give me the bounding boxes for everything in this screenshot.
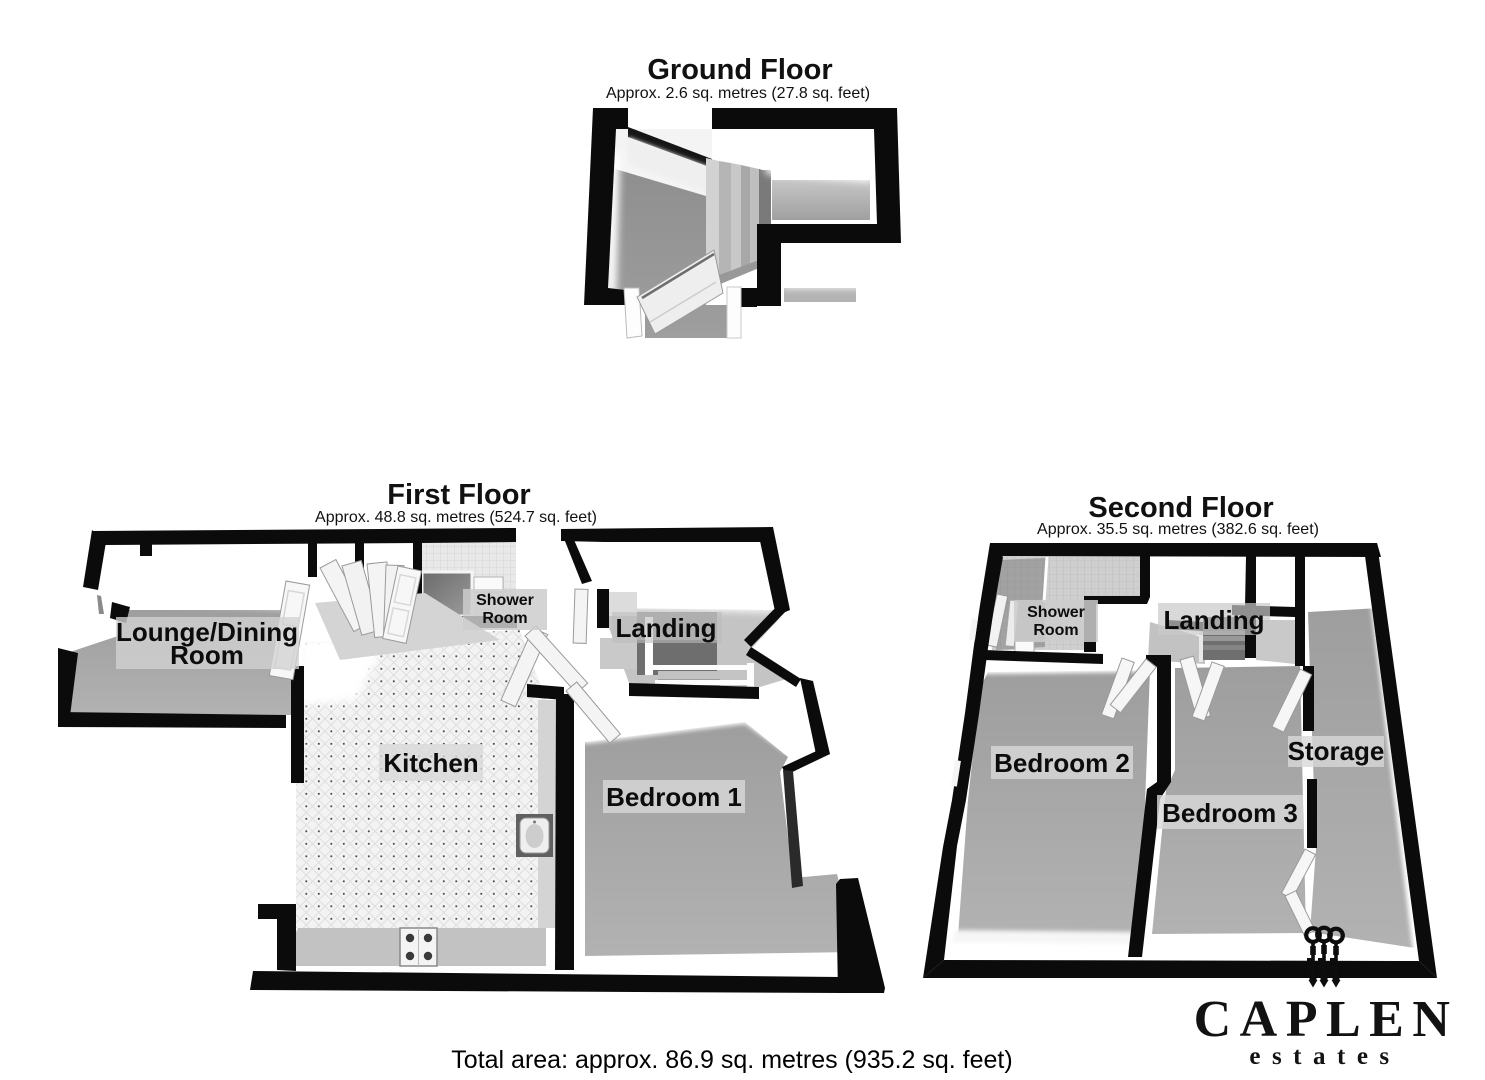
svg-text:Bedroom 2: Bedroom 2 [994, 748, 1130, 778]
svg-text:Shower: Shower [476, 592, 534, 609]
svg-text:Room: Room [482, 610, 527, 627]
svg-text:CAPLEN: CAPLEN [1194, 991, 1459, 1048]
svg-text:Room: Room [1033, 622, 1078, 639]
svg-text:estates: estates [1249, 1043, 1400, 1070]
svg-text:Room: Room [170, 640, 244, 670]
svg-text:Landing: Landing [615, 613, 716, 643]
svg-text:Bedroom 3: Bedroom 3 [1162, 798, 1298, 828]
svg-text:Bedroom 1: Bedroom 1 [606, 782, 742, 812]
svg-text:Landing: Landing [1163, 605, 1264, 635]
svg-text:Storage: Storage [1288, 736, 1385, 766]
svg-text:Shower: Shower [1027, 604, 1085, 621]
svg-text:Kitchen: Kitchen [383, 748, 478, 778]
